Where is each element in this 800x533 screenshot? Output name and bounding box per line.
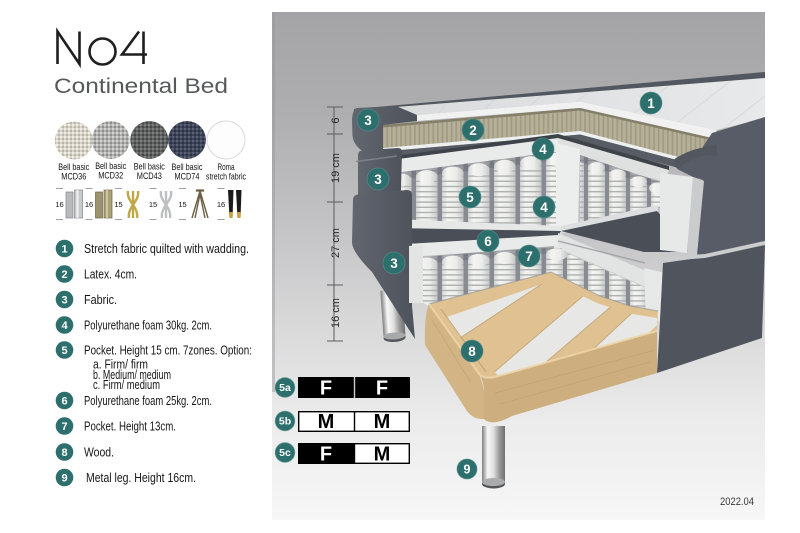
svg-text:MCD43: MCD43: [137, 171, 162, 181]
svg-text:MCD36: MCD36: [61, 172, 86, 182]
svg-text:5b: 5b: [279, 416, 291, 428]
svg-text:Metal leg. Height 16cm.: Metal leg. Height 16cm.: [86, 470, 196, 485]
svg-text:6: 6: [330, 117, 342, 123]
svg-text:16: 16: [217, 200, 225, 209]
svg-text:3: 3: [390, 256, 398, 271]
svg-text:2: 2: [469, 123, 477, 138]
svg-text:19 cm: 19 cm: [330, 153, 342, 183]
svg-text:15: 15: [149, 200, 157, 209]
svg-text:MCD32: MCD32: [98, 171, 123, 181]
svg-text:5: 5: [466, 190, 474, 205]
svg-text:MCD74: MCD74: [175, 172, 200, 182]
svg-text:Bell basic: Bell basic: [58, 162, 89, 172]
svg-text:6: 6: [484, 234, 492, 249]
svg-text:16 cm: 16 cm: [330, 298, 342, 328]
svg-text:27 cm: 27 cm: [330, 228, 342, 258]
svg-text:M: M: [374, 411, 391, 433]
svg-text:Stretch fabric quilted with wa: Stretch fabric quilted with wadding.: [84, 241, 249, 256]
svg-text:6: 6: [61, 396, 67, 408]
svg-text:F: F: [320, 378, 332, 400]
svg-text:5c: 5c: [279, 447, 291, 459]
svg-text:Bell basic: Bell basic: [95, 161, 126, 171]
svg-text:Bell basic: Bell basic: [172, 162, 203, 172]
svg-text:16: 16: [55, 200, 63, 209]
svg-text:Wood.: Wood.: [84, 445, 114, 460]
svg-text:8: 8: [61, 447, 67, 459]
svg-text:2: 2: [61, 269, 67, 281]
svg-text:9: 9: [61, 473, 67, 485]
svg-text:5: 5: [61, 345, 67, 357]
svg-text:M: M: [318, 411, 335, 433]
svg-text:3: 3: [61, 295, 67, 307]
svg-text:Roma: Roma: [218, 162, 235, 172]
svg-text:16: 16: [85, 200, 93, 209]
svg-text:1: 1: [61, 244, 67, 256]
svg-text:2022.04: 2022.04: [720, 496, 754, 508]
svg-text:3: 3: [364, 113, 372, 128]
svg-text:7: 7: [61, 421, 67, 433]
svg-text:stretch fabric: stretch fabric: [206, 172, 246, 182]
svg-text:Continental Bed: Continental Bed: [54, 75, 228, 98]
svg-text:7: 7: [525, 249, 533, 264]
svg-text:F: F: [320, 444, 332, 466]
svg-text:5a: 5a: [279, 382, 291, 394]
svg-text:1: 1: [647, 96, 655, 111]
svg-text:Fabric.: Fabric.: [84, 292, 117, 307]
svg-text:15: 15: [178, 200, 186, 209]
svg-text:15: 15: [114, 200, 122, 209]
svg-text:4: 4: [61, 320, 68, 332]
svg-text:Bell basic: Bell basic: [134, 162, 165, 172]
svg-text:c. Firm/ medium: c. Firm/ medium: [93, 377, 160, 392]
svg-text:4: 4: [540, 200, 548, 215]
svg-text:F: F: [376, 378, 388, 400]
svg-text:3: 3: [374, 172, 382, 187]
svg-text:Polyurethane foam 25kg. 2cm.: Polyurethane foam 25kg. 2cm.: [84, 393, 212, 408]
svg-text:9: 9: [464, 463, 471, 477]
svg-text:Polyurethane foam 30kg. 2cm.: Polyurethane foam 30kg. 2cm.: [84, 318, 212, 333]
svg-text:Latex. 4cm.: Latex. 4cm.: [84, 267, 137, 282]
svg-text:8: 8: [468, 344, 476, 359]
svg-text:Pocket. Height 15 cm. 7zones.: Pocket. Height 15 cm. 7zones. Option:: [84, 343, 252, 358]
svg-text:M: M: [374, 444, 391, 466]
svg-text:Pocket. Height 13cm.: Pocket. Height 13cm.: [84, 419, 176, 434]
svg-text:4: 4: [539, 142, 547, 157]
